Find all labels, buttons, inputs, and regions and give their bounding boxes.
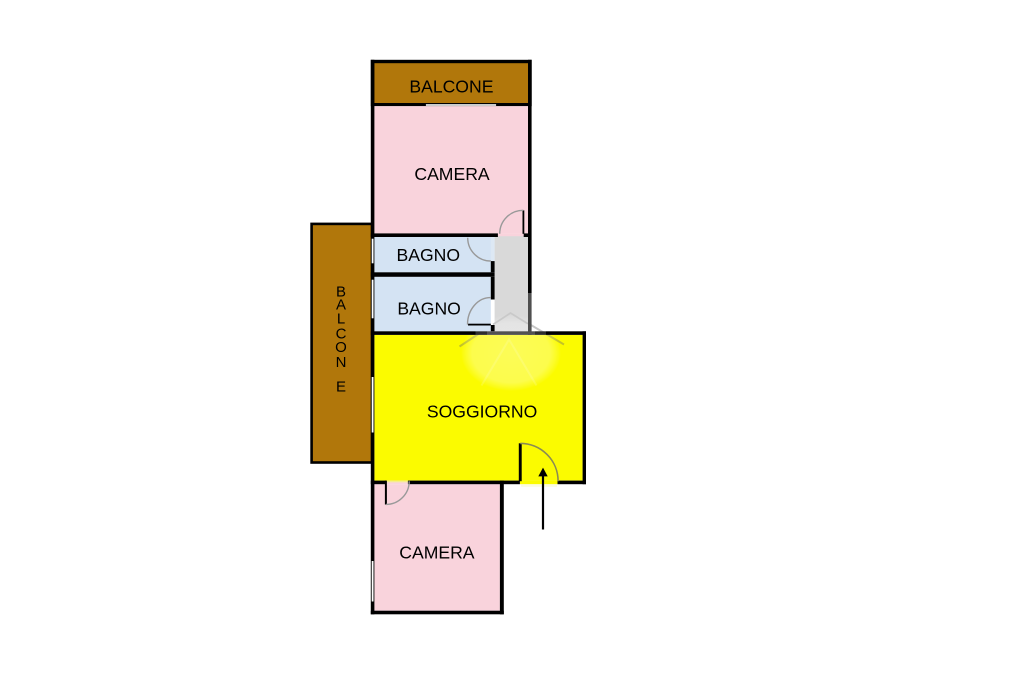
- svg-text:CAMERA: CAMERA: [399, 542, 475, 562]
- svg-text:SOGGIORNO: SOGGIORNO: [427, 402, 537, 422]
- svg-text:BALCONE: BALCONE: [409, 77, 493, 97]
- svg-text:CAMERA: CAMERA: [414, 164, 490, 184]
- svg-text:BAGNO: BAGNO: [397, 245, 461, 265]
- svg-text:E: E: [336, 379, 346, 396]
- svg-text:BAGNO: BAGNO: [397, 299, 461, 319]
- svg-text:N: N: [336, 354, 347, 371]
